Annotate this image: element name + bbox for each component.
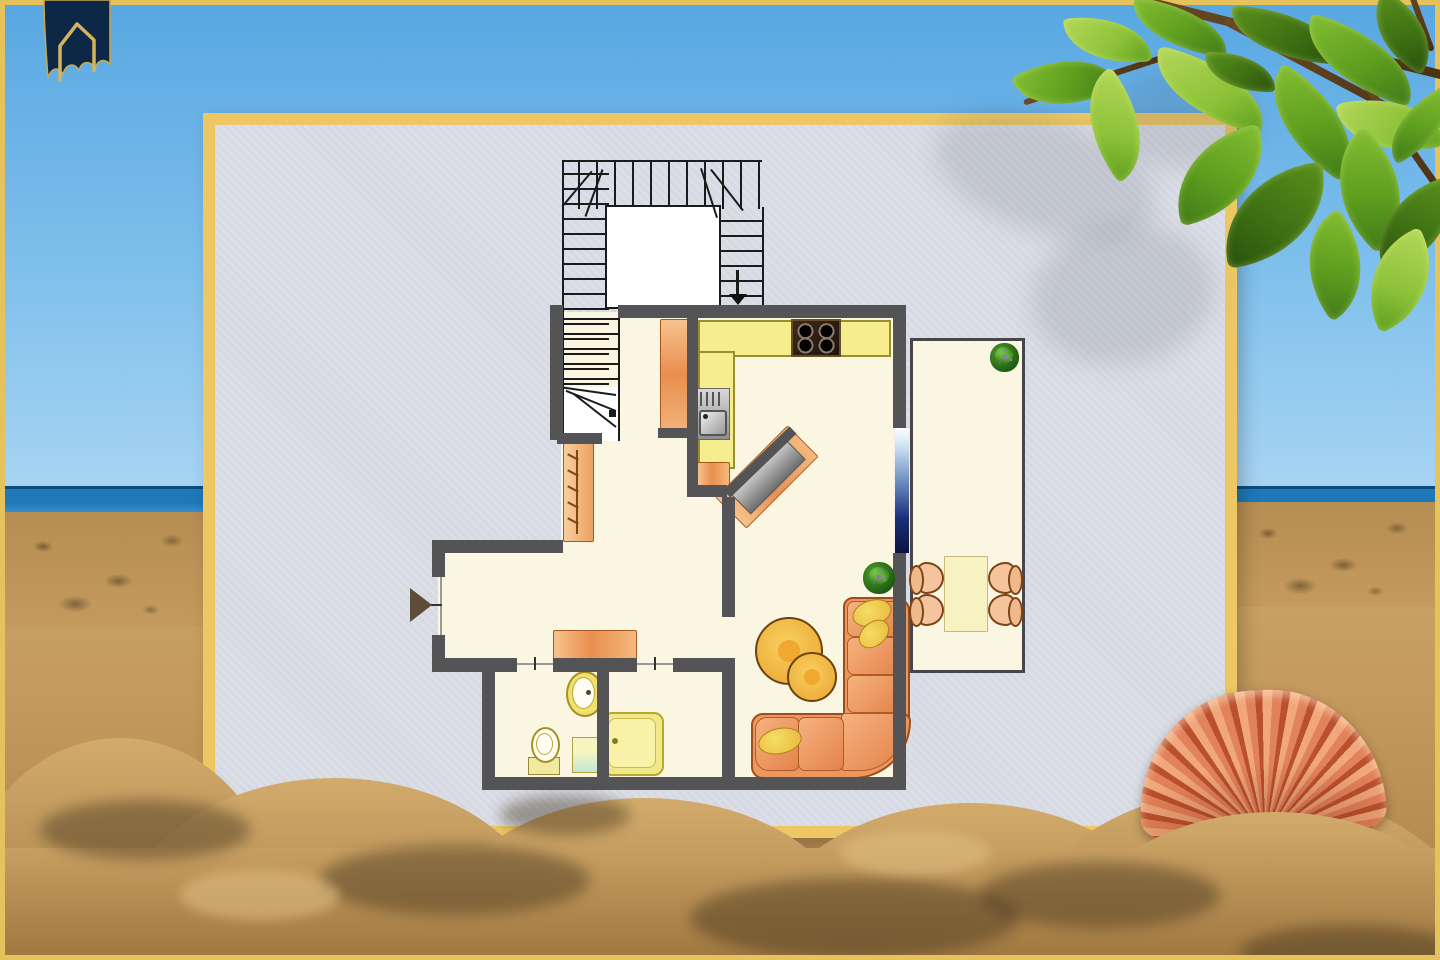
house-logo-graphic bbox=[38, 0, 116, 104]
wall-living-divider-lower bbox=[722, 658, 735, 777]
sink-drainer bbox=[700, 392, 722, 406]
sand-shadow bbox=[500, 795, 630, 835]
rocky-sand-left bbox=[0, 512, 215, 627]
washbasin-bowl bbox=[572, 677, 595, 709]
sand-highlight bbox=[180, 870, 340, 920]
wall-wc-bath-divider bbox=[597, 672, 609, 777]
shower-drain bbox=[612, 738, 618, 744]
wall-living-divider-upper bbox=[722, 497, 735, 617]
potted-plant-icon bbox=[990, 343, 1019, 372]
wall-bath-top bbox=[495, 658, 517, 672]
wc-door-tick bbox=[534, 657, 536, 670]
rocky-sand-right bbox=[1225, 502, 1440, 607]
sink-faucet bbox=[703, 414, 708, 419]
stair-top-flight bbox=[562, 160, 762, 209]
sand-shadow bbox=[40, 800, 250, 860]
wall-bath-top bbox=[673, 658, 722, 672]
floor-hall bbox=[438, 546, 568, 672]
glass-door bbox=[894, 428, 910, 553]
wall-bath-top bbox=[553, 658, 637, 672]
wall-top bbox=[618, 305, 906, 318]
wall-right-upper bbox=[893, 305, 906, 428]
stair-down-arrow-icon bbox=[729, 294, 747, 305]
wall-wc-left bbox=[482, 672, 495, 777]
chair bbox=[988, 594, 1018, 626]
wall-stub-stair bbox=[557, 433, 602, 444]
sofa-cushion bbox=[798, 717, 844, 771]
wall-bottom bbox=[482, 777, 906, 790]
wall-hall-bottom bbox=[432, 658, 495, 672]
basin-faucet bbox=[586, 690, 591, 695]
wall-hall-top bbox=[432, 540, 563, 553]
stair-right-flight bbox=[717, 207, 764, 305]
wall-kitchen-bottom bbox=[687, 485, 727, 497]
coffee-table-small bbox=[787, 652, 837, 702]
sand-highlight bbox=[840, 830, 990, 875]
wall-left-upper bbox=[550, 305, 563, 440]
sand-shadow bbox=[320, 845, 590, 915]
chair bbox=[988, 562, 1018, 594]
stove-burners-icon bbox=[791, 319, 841, 357]
stair-lower-flight bbox=[562, 305, 620, 387]
entrance-arrow-icon bbox=[410, 588, 432, 622]
stair-newel-post bbox=[609, 410, 616, 417]
entrance-door-line bbox=[440, 577, 442, 635]
wc-cabinet bbox=[572, 737, 600, 773]
toilet-seat bbox=[536, 733, 553, 755]
wall-hall-left-upper bbox=[432, 540, 445, 577]
house-logo bbox=[38, 0, 116, 104]
sand-shadow bbox=[690, 878, 1020, 958]
bath-door-tick bbox=[654, 657, 656, 670]
stair-arrow-stem bbox=[736, 270, 739, 296]
stair-well bbox=[605, 205, 721, 309]
sand-shadow bbox=[980, 862, 1220, 928]
wall-right-lower bbox=[893, 553, 906, 790]
tall-cabinet bbox=[660, 319, 690, 430]
wall-kitchen-left bbox=[687, 318, 698, 497]
beach-floorplan-scene bbox=[0, 0, 1440, 960]
dining-table bbox=[944, 556, 988, 632]
potted-plant-icon bbox=[863, 562, 895, 594]
wall-stub-cabinet bbox=[658, 428, 687, 438]
